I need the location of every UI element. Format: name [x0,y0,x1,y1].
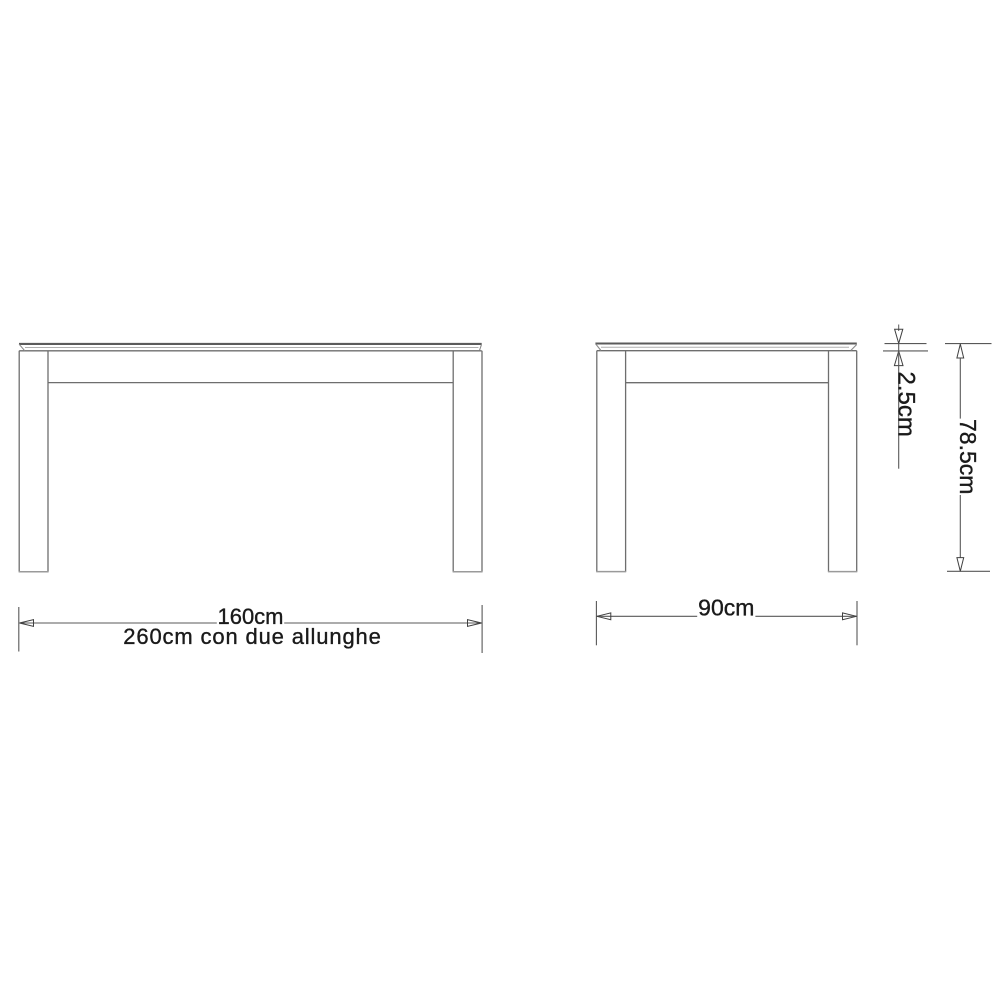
svg-text:260cm con due allunghe: 260cm con due allunghe [123,624,381,649]
svg-text:2.5cm: 2.5cm [893,372,920,437]
svg-text:90cm: 90cm [698,595,754,621]
svg-text:78.5cm: 78.5cm [955,419,981,494]
